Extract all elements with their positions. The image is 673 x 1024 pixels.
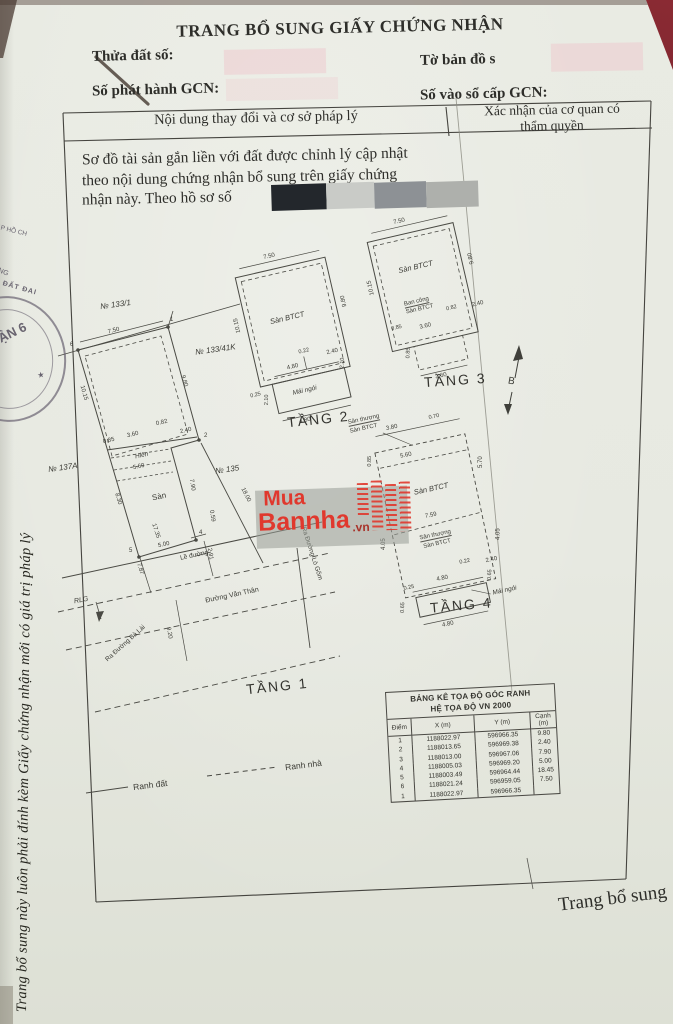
photo-of-certificate: { "doc": { "title": "TRANG BỔ SUNG GIẤY …	[0, 0, 673, 1024]
background-corner	[0, 986, 13, 1024]
redaction-box	[551, 42, 643, 72]
vertex-label: 4	[199, 530, 202, 536]
certificate-page: TRANG BỔ SUNG GIẤY CHỨNG NHẬN Thửa đất s…	[0, 0, 673, 1024]
dim-label: 2.10	[339, 357, 345, 368]
redaction-segment	[374, 181, 427, 209]
watermark-text-suffix: .vn	[352, 521, 370, 534]
watermark-seal-glyphs	[399, 481, 412, 531]
coordinate-table: BẢNG KÊ TỌA ĐỘ GÓC RANH HỆ TỌA ĐỘ VN 200…	[385, 683, 561, 803]
vertex-label: 1	[170, 317, 173, 323]
cell: 1	[391, 791, 415, 802]
coordinate-table-grid: Điểm X (m) Y (m) Cạnh (m) 11188022.97596…	[387, 711, 559, 802]
redaction-segment	[326, 182, 375, 209]
dim-label: 0.65	[487, 569, 494, 580]
field-thua-dat-so: Thửa đất số:	[92, 47, 174, 66]
watermark-text-line2: Bannha	[258, 508, 351, 536]
cell: 1188022.97	[415, 788, 478, 801]
col-header: Cạnh (m)	[530, 711, 556, 729]
paragraph-line3: nhận này. Theo hồ sơ số	[82, 188, 232, 209]
watermark-seal-glyphs	[371, 480, 384, 530]
field-so-vao-so-cap-gcn: Số vào sổ cấp GCN:	[420, 85, 548, 105]
field-so-phat-hanh-gcn: Số phát hành GCN:	[92, 81, 219, 101]
dim-label: 0.65	[400, 602, 407, 613]
vertex-label: 5	[129, 548, 132, 554]
dim-label: 2.10	[264, 394, 270, 405]
redaction-segment	[271, 183, 327, 211]
dim-label: 0.85	[367, 456, 373, 467]
stamp-star: ★	[37, 370, 46, 380]
watermark-seal-glyphs	[385, 484, 398, 530]
cell: 596966.35	[478, 785, 534, 797]
cell	[534, 784, 560, 795]
vertex-label: 2	[204, 433, 207, 439]
paper-top-shadow	[0, 0, 648, 5]
redaction-box	[226, 77, 338, 101]
dim-label: 5.70	[478, 456, 484, 468]
watermark-seal-glyphs	[357, 483, 369, 517]
dim-label: 0.85	[405, 348, 411, 359]
legend-lines	[86, 767, 277, 793]
vertex-label: 6	[70, 342, 73, 348]
watermark-muabannha: Mua Bannha .vn	[255, 479, 417, 557]
field-to-ban-do: Tờ bản đồ s	[420, 51, 496, 70]
redaction-box	[224, 48, 326, 75]
dim-label: 4.05	[495, 528, 501, 540]
watermark-text-line1: Mua	[263, 487, 306, 509]
col-header: Điểm	[387, 719, 411, 737]
